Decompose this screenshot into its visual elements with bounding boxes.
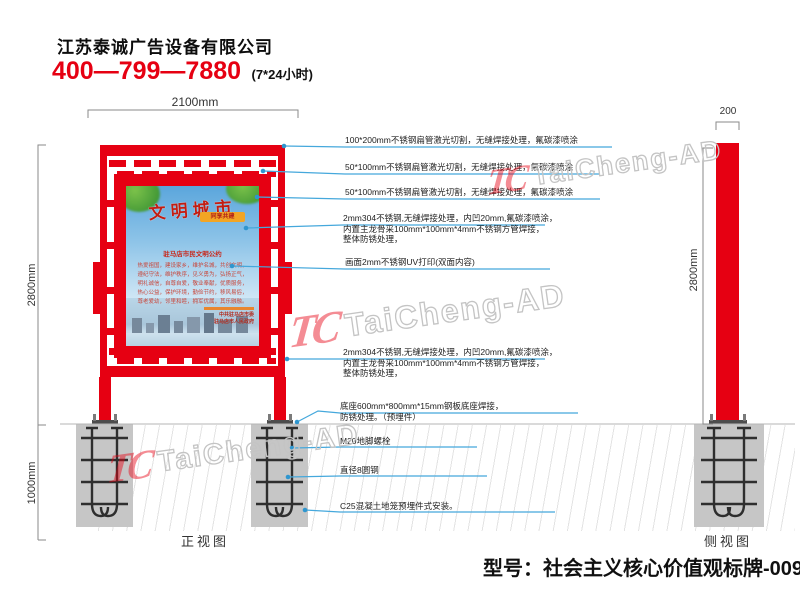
poster-footer-strip	[204, 307, 254, 310]
dim-front-height: 2800mm	[26, 253, 38, 317]
rebar-cage-left	[76, 424, 133, 527]
frame-right-ear	[285, 262, 292, 314]
frame-stub	[107, 200, 114, 207]
ground-hatch	[88, 425, 795, 531]
poster-body-line: 热爱祖国，建设家乡，维护名城，共创文明，	[131, 262, 254, 271]
frame-stub	[271, 200, 278, 207]
frame-stub	[107, 328, 114, 335]
poster-footer-line: 驻马店市人民政府	[214, 319, 254, 326]
building-silhouette	[204, 313, 214, 334]
poster-body-line: 明礼诚信，自尊自爱，敬业奉献，优质服务，	[131, 280, 254, 289]
annotation-line: M20地脚螺栓	[340, 436, 391, 447]
model-number: 型号：社会主义核心价值观标牌-0098	[483, 552, 800, 581]
annotation-line: 底座600mm*800mm*15mm钢板底座焊接，	[340, 401, 503, 412]
annotation-anchor-bolt: M20地脚螺栓	[340, 436, 391, 447]
anchor-bolt	[710, 414, 713, 421]
frame-stub	[271, 242, 278, 249]
annotation-line: 画面2mm不锈钢UV打印(双面内容)	[345, 257, 475, 268]
taicheng-logo-icon: TC	[287, 304, 340, 356]
rebar-cage-side	[694, 424, 764, 527]
anchor-bolt	[289, 414, 292, 421]
design-proof-page: 江苏泰诚广告设备有限公司 400—799—7880 (7*24小时) 2100m…	[0, 0, 800, 600]
poster-footer-text: 中共驻马店市委 驻马店市人民政府	[214, 312, 254, 326]
anchor-bolt	[93, 414, 96, 421]
frame-stub	[107, 242, 114, 249]
front-view-label: 正视图	[160, 531, 250, 550]
annotation-tube-3: 50*100mm不锈钢扁管激光切割，无缝焊接处理，氟碳漆喷涂	[345, 187, 573, 198]
annotation-tube-2: 50*100mm不锈钢扁管激光切割，无缝焊接处理，氟碳漆喷涂	[345, 162, 573, 173]
annotation-panel-upper: 2mm304不锈钢,无缝焊接处理，内凹20mm,氟碳漆喷涂， 内置主龙骨采100…	[343, 213, 557, 245]
watermark-text: TaiCheng-AD	[343, 279, 568, 342]
side-view-label: 侧视图	[693, 531, 763, 550]
annotation-concrete: C25混凝土地笼预埋件式安装。	[340, 501, 458, 512]
watermark: TC TaiCheng-AD	[286, 273, 568, 355]
annotation-line: 2mm304不锈钢,无缝焊接处理，内凹20mm,氟碳漆喷涂，	[343, 213, 557, 224]
side-view-column	[716, 143, 739, 424]
anchor-bolt	[268, 414, 271, 421]
annotation-line: 整体防锈处理，	[343, 368, 557, 379]
front-right-leg	[274, 377, 286, 424]
poster-footer-line: 中共驻马店市委	[214, 312, 254, 319]
rebar-cage-right	[251, 424, 308, 527]
frame-stub	[107, 287, 114, 294]
frame-lattice-top-1	[109, 160, 276, 167]
building-silhouette	[132, 318, 142, 334]
annotation-line: C25混凝土地笼预埋件式安装。	[340, 501, 458, 512]
poster-artwork: 文明城市 同享共建 驻马店市民文明公约 热爱祖国，建设家乡，维护名城，共创文明，…	[126, 186, 259, 346]
hotline-number: 400—799—7880	[52, 57, 241, 85]
annotation-round-steel: 直径8圆钢	[340, 465, 379, 476]
annotation-line: 内置主龙骨采100mm*100mm*4mm不锈钢方管焊接，	[343, 224, 557, 235]
frame-right-bar	[278, 145, 285, 375]
annotation-line: 直径8圆钢	[340, 465, 379, 476]
dim-side-height: 2800mm	[688, 238, 700, 302]
front-left-leg	[99, 377, 111, 424]
annotation-base-plate: 底座600mm*800mm*15mm钢板底座焊接， 防锈处理。（预埋件）	[340, 401, 503, 422]
annotation-uv-print: 画面2mm不锈钢UV打印(双面内容)	[345, 257, 475, 268]
annotation-line: 100*200mm不锈钢扁管激光切割，无缝焊接处理，氟碳漆喷涂	[345, 135, 578, 146]
frame-stub	[271, 287, 278, 294]
dim-side-width: 200	[713, 106, 743, 117]
poster-body-line: 尊老爱幼，邻里和睦，拥军优属，其乐融融。	[131, 298, 254, 307]
annotation-panel-lower: 2mm304不锈钢,无缝焊接处理，内凹20mm,氟碳漆喷涂， 内置主龙骨采100…	[343, 347, 557, 379]
frame-left-ear	[93, 262, 100, 314]
poster-body-text: 热爱祖国，建设家乡，维护名城，共创文明， 遵纪守法，维护秩序，见义勇为，弘扬正气…	[131, 262, 254, 307]
building-silhouette	[187, 317, 200, 334]
anchor-bolt	[743, 414, 746, 421]
annotation-line: 整体防锈处理，	[343, 234, 557, 245]
annotation-line: 内置主龙骨采100mm*100mm*4mm不锈钢方管焊接，	[343, 358, 557, 369]
frame-bottom-bar	[100, 366, 285, 377]
company-name: 江苏泰诚广告设备有限公司	[57, 33, 273, 58]
dim-front-width: 2100mm	[158, 95, 232, 109]
poster-badge: 同享共建	[200, 212, 245, 222]
frame-left-bar	[100, 145, 107, 375]
poster-body-line: 遵纪守法，维护秩序，见义勇为，弘扬正气，	[131, 271, 254, 280]
frame-stub	[271, 328, 278, 335]
hotline-hours: (7*24小时)	[252, 67, 313, 82]
anchor-bolt	[114, 414, 117, 421]
water-reflection	[126, 333, 259, 346]
frame-lattice-bottom-2	[117, 358, 276, 364]
hotline: 400—799—7880 (7*24小时)	[52, 57, 313, 86]
poster-body-line: 热心公益，保护环境，勤俭节约，移风易俗，	[131, 289, 254, 298]
annotation-line: 50*100mm不锈钢扁管激光切割，无缝焊接处理，氟碳漆喷涂	[345, 187, 573, 198]
annotation-line: 50*100mm不锈钢扁管激光切割，无缝焊接处理，氟碳漆喷涂	[345, 162, 573, 173]
dim-foundation-depth: 1000mm	[26, 451, 38, 515]
annotation-line: 2mm304不锈钢,无缝焊接处理，内凹20mm,氟碳漆喷涂，	[343, 347, 557, 358]
building-silhouette	[158, 315, 170, 334]
poster-heading: 驻马店市民文明公约	[126, 248, 259, 258]
annotation-line: 防锈处理。（预埋件）	[340, 412, 503, 423]
annotation-top-tube: 100*200mm不锈钢扁管激光切割，无缝焊接处理，氟碳漆喷涂	[345, 135, 578, 146]
frame-top-bar	[100, 145, 285, 156]
